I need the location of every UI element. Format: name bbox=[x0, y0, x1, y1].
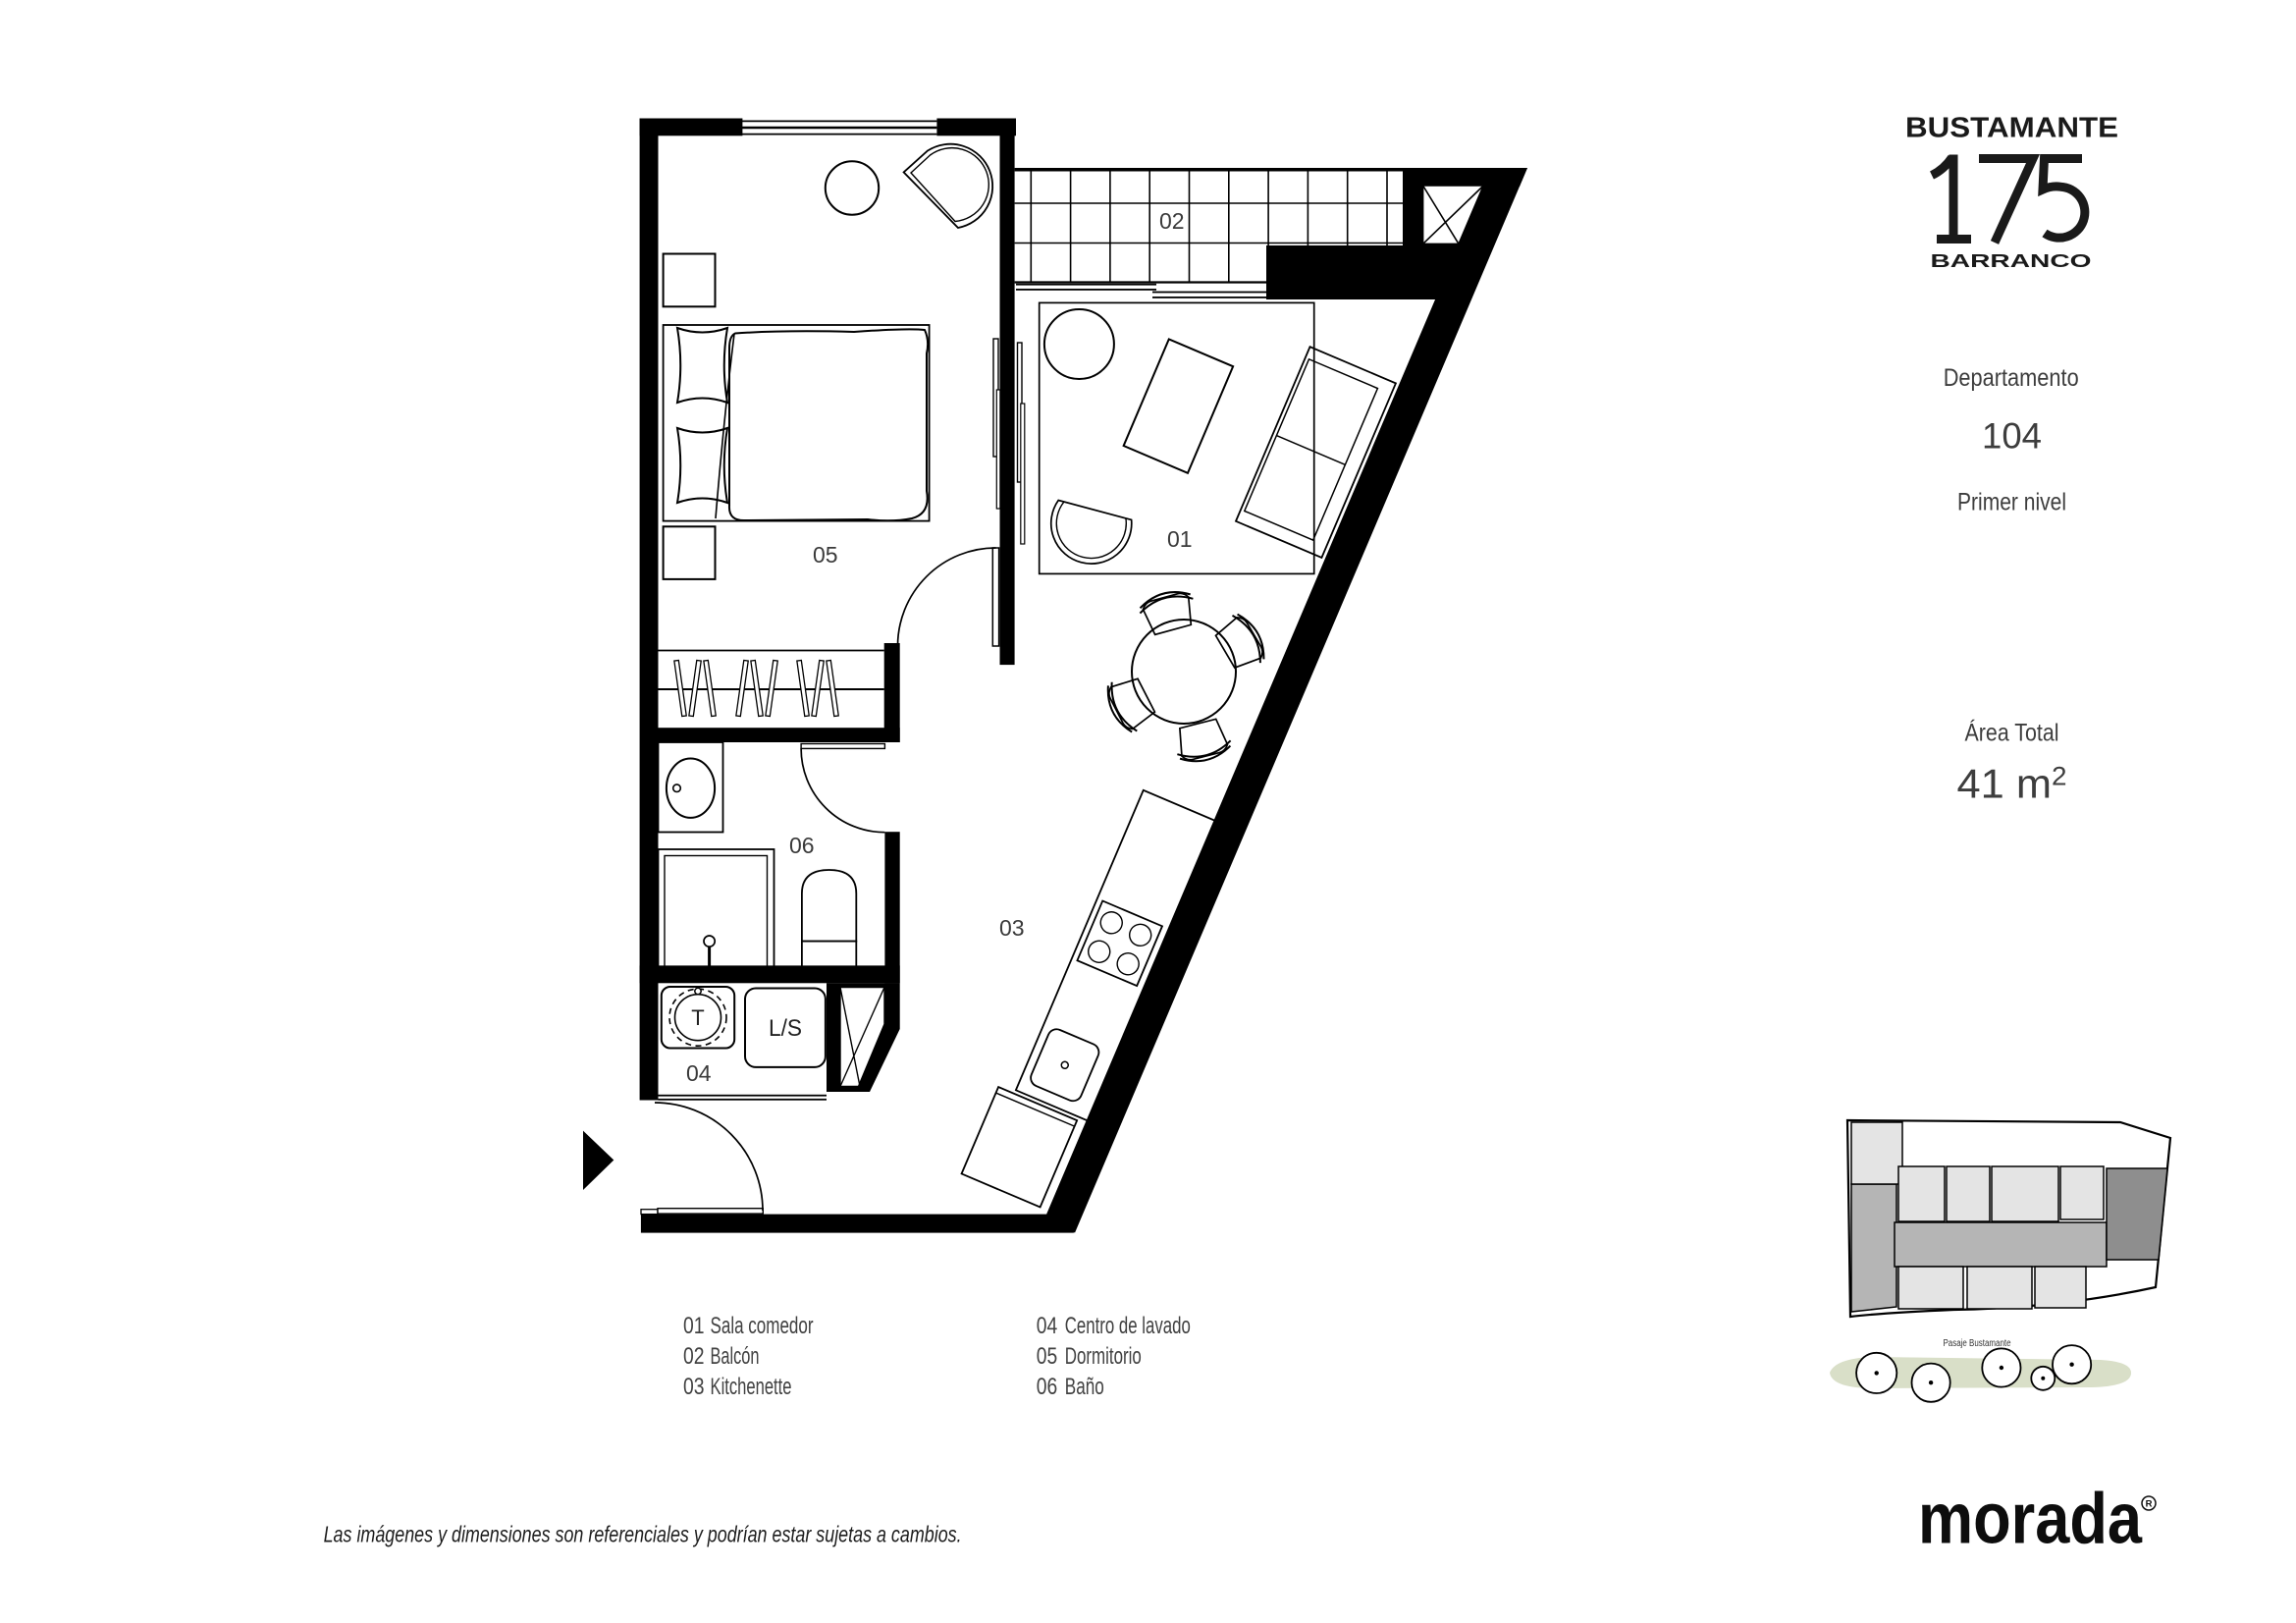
svg-text:Dormitorio: Dormitorio bbox=[1065, 1343, 1142, 1370]
svg-text:02: 02 bbox=[683, 1343, 705, 1370]
svg-text:104: 104 bbox=[1982, 415, 2042, 456]
svg-text:R: R bbox=[2146, 1499, 2153, 1510]
svg-text:Baño: Baño bbox=[1065, 1374, 1104, 1400]
svg-text:06: 06 bbox=[789, 833, 815, 858]
svg-text:01: 01 bbox=[683, 1313, 705, 1339]
svg-text:05: 05 bbox=[1037, 1343, 1058, 1370]
svg-text:01: 01 bbox=[1167, 526, 1193, 552]
svg-text:Centro de lavado: Centro de lavado bbox=[1065, 1313, 1191, 1339]
svg-text:BARRANCO: BARRANCO bbox=[1931, 250, 2092, 271]
svg-text:BUSTAMANTE: BUSTAMANTE bbox=[1905, 112, 2118, 143]
svg-text:Pasaje Bustamante: Pasaje Bustamante bbox=[1944, 1338, 2011, 1349]
svg-text:03: 03 bbox=[999, 915, 1025, 941]
svg-text:06: 06 bbox=[1037, 1374, 1058, 1400]
svg-text:L/S: L/S bbox=[769, 1015, 802, 1042]
svg-text:Área Total: Área Total bbox=[1965, 719, 2059, 747]
svg-text:02: 02 bbox=[1159, 208, 1185, 234]
svg-text:41 m2: 41 m2 bbox=[1957, 761, 2067, 807]
svg-text:Sala comedor: Sala comedor bbox=[711, 1313, 814, 1339]
svg-text:03: 03 bbox=[683, 1374, 705, 1400]
svg-text:Kitchenette: Kitchenette bbox=[711, 1374, 792, 1400]
svg-text:04: 04 bbox=[1037, 1313, 1058, 1339]
svg-text:Departamento: Departamento bbox=[1944, 364, 2079, 392]
svg-text:Primer nivel: Primer nivel bbox=[1957, 489, 2066, 516]
svg-text:morada: morada bbox=[1918, 1480, 2143, 1559]
svg-text:05: 05 bbox=[813, 542, 838, 568]
svg-text:Balcón: Balcón bbox=[711, 1343, 760, 1370]
svg-text:Las imágenes y dimensiones son: Las imágenes y dimensiones son referenci… bbox=[324, 1522, 962, 1547]
svg-text:04: 04 bbox=[686, 1060, 712, 1086]
svg-text:T: T bbox=[691, 1005, 704, 1030]
